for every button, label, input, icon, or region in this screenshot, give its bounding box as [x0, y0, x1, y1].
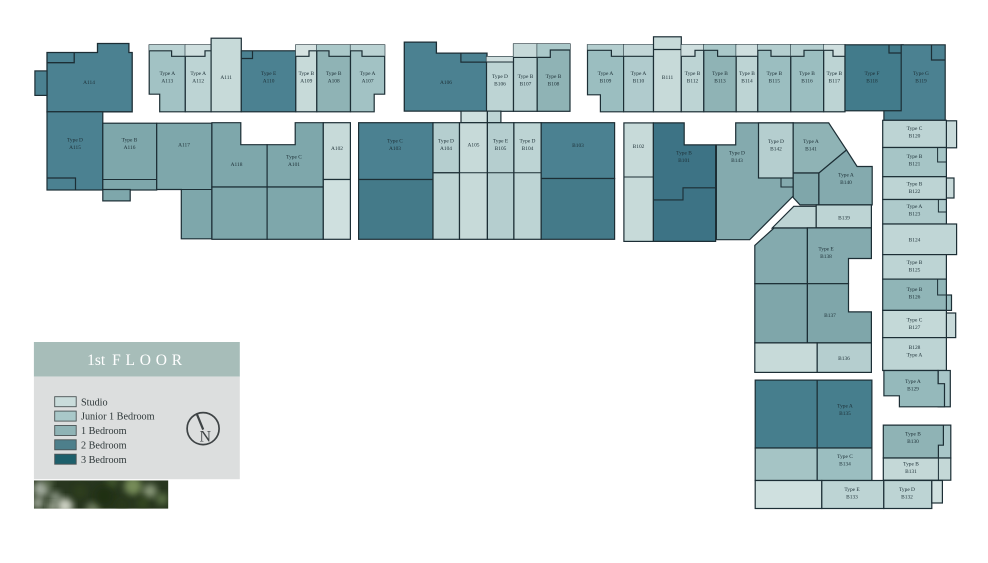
- svg-text:A105: A105: [468, 143, 480, 149]
- svg-text:A118: A118: [231, 162, 243, 168]
- svg-text:Type BA108: Type BA108: [326, 71, 342, 85]
- svg-text:B137: B137: [824, 313, 836, 319]
- svg-text:N: N: [200, 428, 212, 445]
- svg-text:B102: B102: [633, 144, 645, 150]
- svg-text:Type BB108: Type BB108: [546, 74, 562, 88]
- svg-text:Type AA112: Type AA112: [190, 71, 206, 85]
- svg-text:Type BB125: Type BB125: [907, 260, 923, 274]
- svg-text:A111: A111: [220, 75, 232, 81]
- svg-text:Type CB134: Type CB134: [837, 454, 853, 468]
- svg-text:Type BB122: Type BB122: [907, 182, 923, 196]
- svg-text:Type BB101: Type BB101: [676, 151, 692, 165]
- svg-text:1st FLOOR: 1st FLOOR: [87, 352, 187, 369]
- svg-text:A114: A114: [83, 80, 95, 86]
- svg-text:Junior 1 Bedroom: Junior 1 Bedroom: [81, 412, 155, 423]
- svg-text:Type FB118: Type FB118: [864, 71, 879, 85]
- svg-text:Type AB110: Type AB110: [631, 71, 647, 85]
- svg-text:Type DB106: Type DB106: [492, 74, 508, 88]
- svg-text:Type BB131: Type BB131: [903, 462, 919, 476]
- svg-text:Type AA107: Type AA107: [360, 71, 376, 85]
- svg-text:Type AA113: Type AA113: [159, 71, 175, 85]
- svg-text:A102: A102: [331, 146, 343, 152]
- svg-text:Type AB140: Type AB140: [838, 173, 854, 187]
- svg-text:A117: A117: [178, 143, 190, 149]
- svg-text:Type GB119: Type GB119: [913, 71, 929, 85]
- svg-text:Type DB132: Type DB132: [899, 487, 915, 501]
- svg-text:Type CB120: Type CB120: [907, 126, 923, 140]
- svg-text:Type AB135: Type AB135: [837, 404, 853, 418]
- svg-text:Type DB143: Type DB143: [729, 151, 745, 165]
- svg-text:B111: B111: [662, 75, 674, 81]
- svg-text:Type AB109: Type AB109: [598, 71, 614, 85]
- svg-text:Type BB121: Type BB121: [907, 154, 923, 168]
- svg-text:Type BB126: Type BB126: [907, 287, 923, 301]
- svg-text:B128Type A: B128Type A: [907, 345, 923, 359]
- svg-text:Type DB142: Type DB142: [768, 139, 784, 153]
- svg-text:Type DA104: Type DA104: [438, 139, 454, 153]
- svg-text:Type AB141: Type AB141: [803, 139, 819, 153]
- svg-text:B139: B139: [838, 216, 850, 222]
- svg-text:Type BB107: Type BB107: [518, 74, 534, 88]
- svg-text:2 Bedroom: 2 Bedroom: [81, 440, 127, 451]
- svg-text:B103: B103: [572, 143, 584, 149]
- svg-text:Type BA116: Type BA116: [122, 138, 138, 152]
- svg-text:Type CA103: Type CA103: [387, 139, 403, 153]
- svg-text:A106: A106: [440, 80, 452, 86]
- svg-text:1 Bedroom: 1 Bedroom: [81, 426, 127, 437]
- svg-text:Type DB104: Type DB104: [520, 139, 536, 153]
- svg-text:Type BB130: Type BB130: [905, 432, 921, 446]
- svg-text:Type CB127: Type CB127: [907, 318, 923, 332]
- svg-text:Type DA115: Type DA115: [67, 138, 83, 152]
- svg-text:B124: B124: [909, 238, 921, 244]
- svg-text:Type AB129: Type AB129: [905, 379, 921, 393]
- svg-text:3 Bedroom: 3 Bedroom: [81, 455, 127, 466]
- svg-text:Type AB123: Type AB123: [907, 204, 923, 218]
- svg-text:Studio: Studio: [81, 397, 108, 408]
- svg-text:Type CA101: Type CA101: [286, 155, 302, 169]
- svg-text:Type BA109: Type BA109: [298, 71, 314, 85]
- svg-text:B136: B136: [838, 356, 850, 362]
